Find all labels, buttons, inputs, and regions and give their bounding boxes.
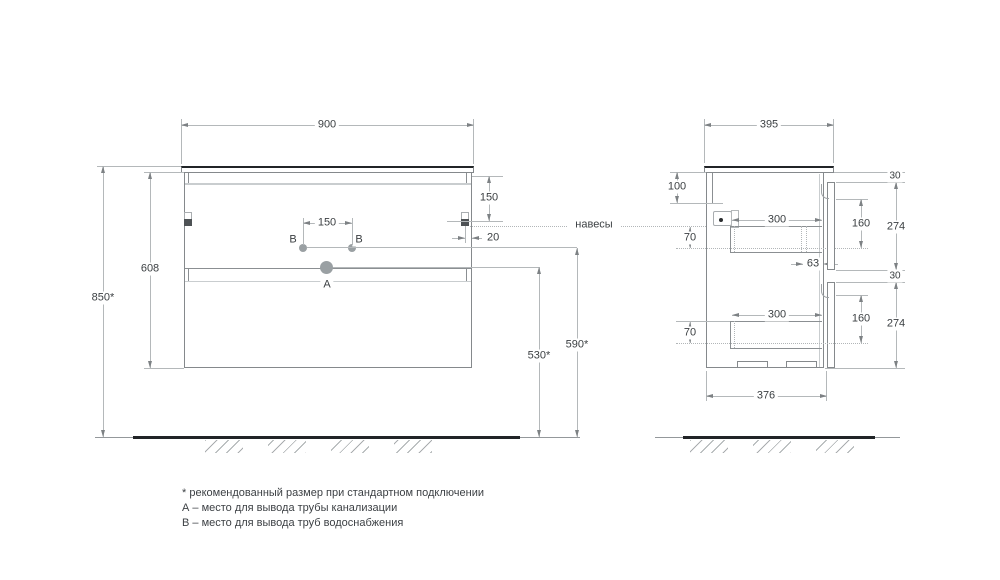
- dim-outlet-a-height: 530*: [525, 350, 554, 363]
- dim-b-holes-spacing: 150: [315, 217, 339, 230]
- dim-arrow: [472, 236, 479, 240]
- dim-arrow: [815, 313, 822, 317]
- dim-overall-height: 850*: [89, 292, 118, 305]
- dim-arrow: [704, 123, 711, 127]
- dim-arrow: [537, 267, 541, 274]
- dim-drawer-top-back-gap: 70: [681, 232, 699, 245]
- dim-arrow: [487, 214, 491, 221]
- drawer-handle-groove-bottom: [821, 284, 829, 298]
- dim-depth-overall: 395: [757, 119, 781, 132]
- floor-hatching-side: [690, 440, 867, 453]
- dim-arrow: [181, 123, 188, 127]
- dim-arrow: [894, 182, 898, 189]
- hangers-dotted-line: [621, 226, 712, 227]
- ext-line: [836, 199, 868, 200]
- side-back-rail: [712, 173, 713, 203]
- dim-body-height: 608: [138, 263, 162, 276]
- dim-hanger-from-side: 20: [484, 232, 502, 245]
- floor-hatching-front: [205, 440, 450, 453]
- dim-back-rail-height: 100: [665, 181, 689, 194]
- dim-arrow: [796, 262, 803, 266]
- dim-arrow: [575, 430, 579, 437]
- dim-arrow: [537, 430, 541, 437]
- water-outlet-b-left: [299, 244, 307, 252]
- note-a-legend: А – место для вывода трубы канализации: [182, 502, 397, 515]
- dim-arrow: [101, 166, 105, 173]
- ext-line: [676, 321, 730, 322]
- drawer-box-bottom-line: [730, 252, 822, 253]
- floor-line-front: [133, 436, 520, 439]
- dim-arrow: [345, 221, 352, 225]
- note-recommended-size: * рекомендованный размер при стандартном…: [182, 487, 484, 500]
- ext-line: [97, 166, 181, 167]
- dim-arrow: [148, 172, 152, 179]
- dim-arrow: [820, 394, 827, 398]
- wall-hanger-icon-right: [461, 212, 469, 226]
- dim-depth-body: 376: [754, 390, 778, 403]
- ext-line: [670, 203, 723, 204]
- label-hole-a: A: [320, 279, 333, 292]
- dim-arrow: [859, 199, 863, 206]
- ext-line: [352, 218, 353, 245]
- dim-arrow: [859, 241, 863, 248]
- dim-arrow: [894, 361, 898, 368]
- front-divider-tick-left: [188, 269, 189, 281]
- dim-drawer-top-front-height: 274: [884, 221, 908, 234]
- dim-arrow: [815, 218, 822, 222]
- dim-arrow: [732, 218, 739, 222]
- dim-arrow: [827, 123, 834, 127]
- hangers-dotted-line: [470, 226, 567, 227]
- leader-line-a: [333, 267, 539, 268]
- dim-drawer-bottom-depth: 300: [765, 309, 789, 322]
- side-front-panel-inner-line: [819, 174, 820, 367]
- hangers-label: навесы: [572, 219, 615, 232]
- cabinet-foot-notch: [737, 361, 768, 368]
- label-hole-b-left: B: [286, 234, 299, 247]
- dim-arrow: [675, 196, 679, 203]
- floor-line-side: [683, 436, 875, 439]
- front-rail-tick-left: [188, 173, 189, 183]
- dim-drawer-top-depth: 300: [765, 214, 789, 227]
- dim-arrow: [675, 172, 679, 179]
- drawer-box-bottom-line: [730, 348, 822, 349]
- dim-arrow: [859, 336, 863, 343]
- dim-arrow: [575, 248, 579, 255]
- dim-reveal-middle: 30: [887, 270, 902, 283]
- dim-drawer-bottom-inner-height: 160: [849, 313, 873, 326]
- dim-drawer-bottom-back-gap: 70: [681, 327, 699, 340]
- sewage-outlet-a: [320, 261, 333, 274]
- leader-line-b: [307, 247, 577, 248]
- dim-arrow: [148, 361, 152, 368]
- leader-line-hanger: [447, 221, 503, 222]
- front-rail-tick-right: [466, 173, 467, 183]
- front-top-rail-line: [185, 183, 471, 185]
- ext-line: [144, 368, 184, 369]
- dim-slide-front-gap: 63: [804, 258, 822, 271]
- dim-arrow: [467, 123, 474, 127]
- dim-drawer-bottom-front-height: 274: [884, 318, 908, 331]
- wall-hanger-icon-left: [184, 212, 192, 226]
- dim-hanger-from-top: 150: [477, 192, 501, 205]
- dim-arrow: [894, 282, 898, 289]
- dim-arrow: [101, 430, 105, 437]
- drawer-handle-groove-top: [821, 184, 829, 199]
- dim-arrow: [706, 394, 713, 398]
- ext-line: [825, 368, 905, 369]
- ext-line: [836, 295, 868, 296]
- dim-arrow: [859, 295, 863, 302]
- drawer-box-inner-dotted: [676, 248, 868, 249]
- dim-front-width: 900: [315, 119, 339, 132]
- dim-arrow: [487, 176, 491, 183]
- technical-drawing: B B A 150 900 850* 608 150 20 навесы: [0, 0, 1000, 580]
- ext-line: [465, 226, 466, 243]
- dim-arrow: [732, 313, 739, 317]
- dim-reveal-top: 30: [887, 170, 902, 183]
- dim-outlet-b-height: 590*: [563, 339, 592, 352]
- dim-arrow: [458, 236, 465, 240]
- label-hole-b-right: B: [352, 234, 365, 247]
- front-divider-tick-right: [466, 269, 467, 281]
- cabinet-foot-notch: [786, 361, 817, 368]
- note-b-legend: В – место для вывода труб водоснабжения: [182, 517, 403, 530]
- drawer-box-inner-dotted: [676, 343, 868, 344]
- dim-arrow: [303, 221, 310, 225]
- dim-drawer-top-inner-height: 160: [849, 218, 873, 231]
